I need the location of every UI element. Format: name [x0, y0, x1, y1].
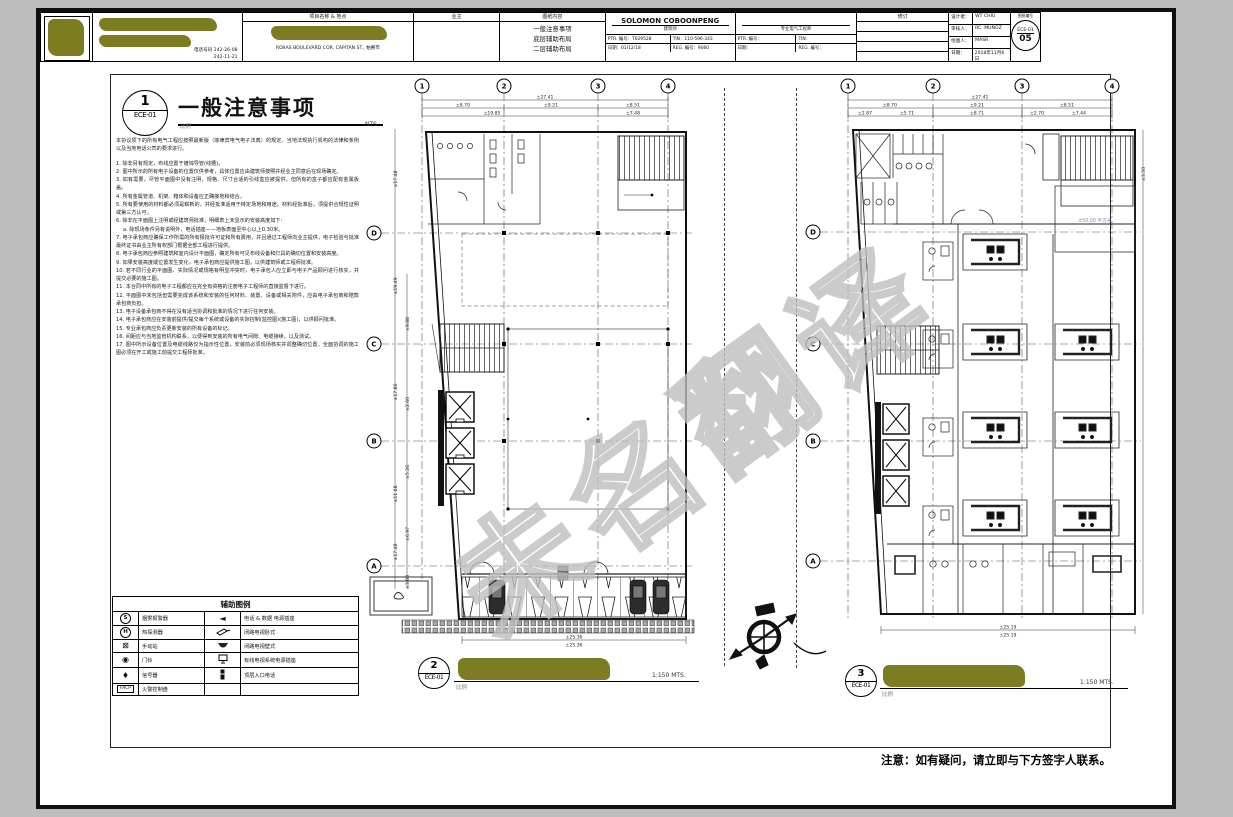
plan2-scale-label: 比例: [456, 683, 467, 691]
grid-rows: [381, 233, 692, 566]
legend-title: 辅助图例: [113, 597, 359, 612]
content-line: 底层辅助布局: [500, 35, 605, 45]
signal-device-icon: ♦: [113, 668, 139, 684]
plan2-scale-value: 1:150 MTS.: [652, 672, 686, 679]
contact-warning-note: 注意：如有疑问，请立即与下方签字人联系。: [700, 752, 1111, 768]
svg-text:±8.70: ±8.70: [456, 103, 470, 109]
svg-text:±3.50: ±3.50: [1141, 167, 1147, 181]
svg-text:±25.36: ±25.36: [565, 635, 582, 641]
svg-text:±8.70: ±8.70: [883, 103, 897, 109]
legend-label: 闭路电视壁式: [241, 640, 359, 653]
smoke-detector-icon: S: [113, 612, 139, 626]
svg-text:3: 3: [596, 83, 601, 91]
svg-text:±11.68: ±11.68: [393, 485, 399, 502]
note-item: 2. 图中所示的所有电子设备的位置仅供参考，具体位置应由建筑师按照并经业主同意后…: [116, 168, 359, 176]
legend-label: 门铃: [139, 653, 205, 668]
stairs-mid-left: [877, 326, 939, 374]
svg-text:±17.86: ±17.86: [393, 383, 399, 400]
architect-name: SOLOMON COBOONPENG: [612, 17, 729, 26]
note-item: 13. 电子设备承包商不得在没有适当协调和批准的情况下进行任何安装。: [116, 308, 359, 316]
entry-phone-icon: [205, 668, 241, 684]
svg-text:±50.00 平方米: ±50.00 平方米: [1078, 217, 1112, 224]
project-address: ROXAS BOULEVARD COR. CAPITAN ST., 帕赛市: [243, 45, 414, 52]
sheet-number-bubble: ECE-01 05: [1011, 20, 1040, 51]
svg-text:±9.21: ±9.21: [970, 103, 984, 109]
note-item: 17. 图中所示设备位置及电缆线路仅为指示性位置，安装前必须现场核实并调整确切位…: [116, 341, 359, 358]
svg-text:±9.88: ±9.88: [405, 317, 411, 331]
redacted-plan3-title: [883, 665, 1025, 687]
tel-data-outlet-icon: ◄: [205, 612, 241, 626]
svg-text:±8.51: ±8.51: [626, 103, 640, 109]
svg-text:±5.71: ±5.71: [900, 111, 914, 117]
svg-text:±25.36: ±25.36: [565, 643, 582, 649]
svg-text:±17.48: ±17.48: [393, 543, 399, 560]
legend-label: 信号器: [139, 668, 205, 684]
svg-text:4: 4: [1110, 83, 1115, 91]
svg-text:2: 2: [931, 83, 936, 91]
stairs-top-right: [1025, 134, 1133, 206]
svg-text:±19.49: ±19.49: [393, 277, 399, 294]
redacted-logo: [48, 19, 84, 56]
architect-date: 01/12/18: [621, 46, 641, 51]
drafter-name: MASR: [973, 37, 990, 48]
titleblock-date: 2018年11月6日: [973, 49, 1010, 61]
svg-text:±17.48: ±17.48: [393, 170, 399, 187]
grid-row-bubbles: D C B A: [806, 225, 820, 568]
company-phone: 电话号码 242-26-08: [192, 47, 240, 54]
svg-text:±8.51: ±8.51: [1060, 103, 1074, 109]
note-item: 12. 平面图中未包括但需要完成该系统和安装的任何材料、装置、设备或相关附件，应…: [116, 292, 359, 309]
note-item: 5. 所有要使用的材料都必须是崭新的，并经批准适用于特定场地和用途。材料经批准后…: [116, 201, 359, 218]
legend-label: 顶层入口电话: [241, 668, 359, 684]
svg-text:±7.44: ±7.44: [1072, 111, 1086, 117]
legend-table: 辅助图例 S 烟雾报警器 ◄ 电话 & 数据 电源插座 H 热探测器 闭路电视卧…: [112, 596, 359, 696]
stairs-top-right: [618, 136, 684, 210]
content-line: 二层辅助布局: [500, 45, 605, 55]
svg-text:±9.21: ±9.21: [544, 103, 558, 109]
svg-text:±2.70: ±2.70: [1030, 111, 1044, 117]
note-item: 4. 所有金属管道、机架、箱体和设备应正确接地和结合。: [116, 193, 359, 201]
manual-station-icon: ⊠: [113, 640, 139, 653]
legend-label: 热探测器: [139, 626, 205, 640]
elevator-bank: [438, 390, 474, 506]
redacted-company-line2: [99, 35, 191, 47]
designer-name: WT CHIU: [973, 13, 997, 24]
sheetno-header: 图纸编号: [1011, 13, 1040, 19]
top-dimension-texts: ±27.41 ±8.70 ±9.21 ±8.51 ±2.87 ±5.71 ±8.…: [858, 95, 1086, 117]
note-item: 8. 电子承包商应参照建筑和室内设计平面图，确定所有可见布线设备和灯具的确切位置…: [116, 250, 359, 258]
sheet-contents-cell: 图纸内容 一般注意事项 底层辅助布局 二层辅助布局: [500, 13, 606, 61]
note-item: 16. 间距应与当地监管机构联系，以便得到安装的所有电气间隙、电缆接续，以及测试…: [116, 333, 359, 341]
svg-text:±2.87: ±2.87: [858, 111, 872, 117]
svg-text:A: A: [371, 563, 377, 571]
bottom-dimensions: ±25.36 ±25.36: [462, 635, 686, 649]
detail-1-number: 1: [123, 91, 167, 111]
toilet-rooms: [428, 134, 540, 224]
legend-label: 火警控制盘: [139, 684, 205, 696]
legend-label: 烟雾报警器: [139, 612, 205, 626]
viewer-desktop: { "watermark": "未名翻译", "general_notes": …: [0, 0, 1233, 817]
note-item: 10. 若不同行业的平面图、实际情况或规格有明显冲突时，电子承包人应立即与电子产…: [116, 267, 359, 284]
svg-text:±2.60: ±2.60: [405, 397, 411, 411]
redacted-project-name: [271, 26, 387, 40]
checker-name: RC. MUÑOZ: [973, 25, 1004, 36]
parked-car: [630, 580, 646, 614]
revision-cell: 修订: [857, 13, 949, 61]
sheet-number-cell: 图纸编号 ECE-01 05: [1011, 13, 1040, 61]
bottom-dimensions: ±25.19 ±25.19: [881, 625, 1135, 639]
plan2-title-line: [454, 681, 699, 682]
svg-text:±19.85: ±19.85: [483, 111, 500, 117]
parked-car: [653, 580, 669, 614]
architect-reg: 9060: [698, 46, 709, 51]
svg-text:B: B: [371, 438, 376, 446]
architect-title: 建筑师: [606, 26, 735, 32]
architect-ptr: T029528: [632, 37, 651, 42]
svg-text:±6.97: ±6.97: [405, 527, 411, 541]
match-line-left: [724, 88, 725, 666]
svg-text:D: D: [810, 229, 816, 237]
svg-text:±7.48: ±7.48: [626, 111, 640, 117]
architect-tin: 110-596-343: [684, 37, 712, 42]
match-line-right: [796, 88, 797, 668]
svg-text:±25.19: ±25.19: [999, 633, 1016, 639]
sidewalk: [402, 620, 694, 633]
project-header: 项目名称 & 地点: [243, 13, 414, 22]
note-item: 7. 电子承包商应确保工作所需的所有报批许可证和所有费用，并且通过工程师向业主提…: [116, 234, 359, 251]
upper-room: ±50.00 平方米: [1055, 186, 1135, 252]
parking-stalls: [462, 577, 686, 617]
drawing-sheet: 1 ECE-01 一般注意事项 比例 NTS 本协议项下的所有电气工程应按照最新…: [36, 8, 1176, 809]
company-logo-cell: [41, 13, 93, 61]
svg-text:2: 2: [502, 83, 507, 91]
sheet-num: 05: [1019, 34, 1032, 44]
plan3-scale-label: 比例: [882, 690, 893, 698]
engineer-title: 专业电气工程师: [736, 26, 857, 32]
note-item: 3. 如有需要，尽管平面图中没有注明，规格、尺寸合适的引线盒应被提供，但所有的盒…: [116, 176, 359, 193]
stairs-mid-left: [432, 324, 504, 372]
legend-label: 手动站: [139, 640, 205, 653]
approvals-cell: 设计者：WT CHIU 审核人：RC. MUÑOZ 绘图人：MASR 日期：20…: [949, 13, 1011, 61]
cctv-dome-icon: [205, 640, 241, 653]
svg-text:1: 1: [420, 83, 425, 91]
left-dimensions: ±17.48 ±19.49 ±17.86 ±11.68 ±17.48 ±9.88…: [393, 129, 411, 589]
contents-header: 图纸内容: [500, 13, 605, 22]
grid-row-bubbles: D C B A: [367, 226, 381, 573]
svg-text:±27.41: ±27.41: [536, 95, 553, 101]
svg-text:D: D: [371, 230, 377, 238]
parked-car: [489, 580, 505, 614]
notes-scale-label: 比例: [180, 122, 191, 130]
ground-floor-plan: 1 2 3 4 ±27.41 ±8.70 ±9.21 ±8.51 ±19.85 …: [362, 74, 698, 654]
note-item: 15. 专业承包商应负责更新安装的所有设备的标记。: [116, 325, 359, 333]
ktv-rooms: [923, 224, 1119, 614]
redacted-company-name: [99, 18, 217, 31]
svg-text:C: C: [810, 341, 815, 349]
cctv-camera-icon: [205, 626, 241, 640]
content-line: 一般注意事项: [500, 25, 605, 35]
svg-text:1: 1: [846, 83, 851, 91]
company-phone2: 242-11-21: [212, 54, 240, 61]
grid-column-bubbles: 1 2 3 4: [415, 79, 675, 93]
legend-label: 电话 & 数据 电源插座: [241, 612, 359, 626]
svg-text:±27.41: ±27.41: [971, 95, 988, 101]
detail-1-bubble: 1 ECE-01: [122, 90, 168, 136]
legend-label: 闭路电视卧式: [241, 626, 359, 640]
elevator-bank: [875, 402, 909, 514]
door-chime-icon: ◉: [113, 653, 139, 668]
svg-text:±5.26: ±5.26: [405, 465, 411, 479]
second-floor-plan: 1 2 3 4 ±27.41 ±8.70 ±9.21 ±8.51 ±2.87 ±…: [803, 74, 1151, 660]
heat-detector-icon: H: [113, 626, 139, 640]
redacted-plan2-title: [458, 658, 610, 680]
svg-text:±8.71: ±8.71: [970, 111, 984, 117]
svg-text:3: 3: [1020, 83, 1025, 91]
notes-intro: 本协议项下的所有电气工程应按照最新版（菲律宾电气电子法典）的规定、当地法规执行机…: [116, 137, 359, 154]
owner-cell: 业主: [414, 13, 500, 61]
plan3-scale-value: 1:150 MTS.: [1080, 679, 1114, 686]
note-item: 14. 电子承包商应在安装前提供/提交每个系统或设备的实际控制(监控图)(施工图…: [116, 316, 359, 324]
svg-text:A: A: [810, 558, 816, 566]
catv-outlet-icon: [205, 653, 241, 668]
planter-box: [370, 577, 432, 615]
general-notes-body: 本协议项下的所有电气工程应按照最新版（菲律宾电气电子法典）的规定、当地法规执行机…: [116, 137, 359, 358]
right-dimensions: ±3.50: [1141, 130, 1147, 614]
revision-header: 修订: [857, 13, 948, 22]
svg-text:4: 4: [666, 83, 671, 91]
note-item: 1. 除非另有规定，布线应置于镀锌导管(线槽)。: [116, 160, 359, 168]
facp-icon: FACP: [113, 684, 139, 696]
top-dimension-texts: ±27.41 ±8.70 ±9.21 ±8.51 ±19.85 ±7.48: [456, 95, 640, 117]
note-item-sub: a. 除现场条件另有说明外，电话插座——地板表面至中心以上0.30米。: [116, 226, 359, 234]
project-cell: 项目名称 & 地点 ROXAS BOULEVARD COR. CAPITAN S…: [243, 13, 415, 61]
building-outline: [426, 132, 686, 619]
legend-label: 有线电视系统电源插座: [241, 653, 359, 668]
note-item: 6. 除非在平面图上注明或经建筑师批准，明细表上未显示的安装高度如下：: [116, 217, 359, 225]
engineer-cell: 专业电气工程师 PTR. 编号： TIN： 日期： REG. 编号：: [736, 13, 858, 61]
svg-text:C: C: [371, 341, 376, 349]
svg-text:±25.19: ±25.19: [999, 625, 1016, 631]
architect-cell: SOLOMON COBOONPENG 建筑师 PTR. 编号：T029528 T…: [606, 13, 736, 61]
general-notes-title: 一般注意事项: [178, 92, 383, 126]
detail-2-bubble: 2 ECE-01: [418, 657, 450, 689]
company-info-cell: 电话号码 242-26-08 242-11-21: [93, 13, 243, 61]
plan3-title-line: [880, 688, 1128, 689]
svg-text:B: B: [810, 438, 815, 446]
note-item: 11. 本合同中所有的电子工程都应在完全有资格的注册电子工程师的直接监督下进行。: [116, 283, 359, 291]
grid-column-bubbles: 1 2 3 4: [841, 79, 1119, 93]
bottom-rooms: [887, 544, 1135, 614]
title-block: 电话号码 242-26-08 242-11-21 项目名称 & 地点 ROXAS…: [40, 12, 1041, 62]
note-item: 9. 如果安装高度或位置发生变化，电子承包商应提供施工图，以供建筑师或工程师批准…: [116, 259, 359, 267]
owner-header: 业主: [414, 13, 499, 22]
detail-1-sheet-ref: ECE-01: [123, 111, 167, 119]
detail-3-bubble: 3 ECE-01: [845, 665, 877, 697]
